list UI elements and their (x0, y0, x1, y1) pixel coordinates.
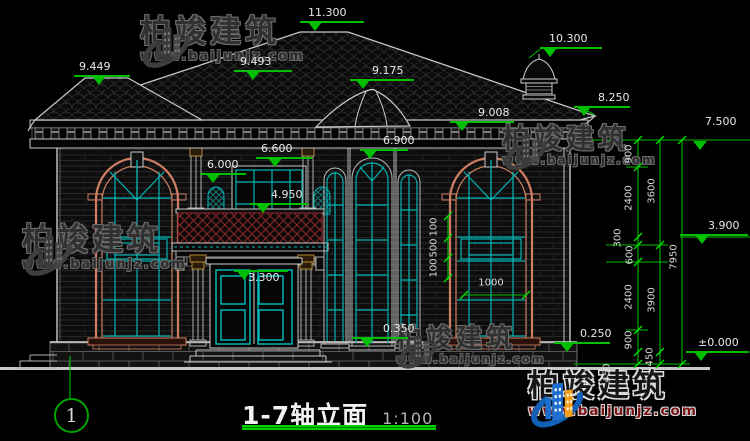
level-marker-line (680, 234, 748, 236)
elevation-sheet: 11.3009.4499.4939.17510.3009.0088.2507.5… (0, 0, 750, 441)
linear-dim-value: 7950 (669, 244, 680, 269)
watermark-brand-text: 柏竣建筑 (140, 16, 305, 49)
level-marker-triangle (695, 235, 709, 244)
level-marker-triangle (92, 76, 106, 85)
level-marker-value: 7.500 (705, 116, 737, 128)
level-marker-value: 3.300 (248, 272, 280, 284)
watermark-url-text: www.baijunjz.com (528, 403, 698, 419)
linear-dim-value: 500 (429, 238, 440, 257)
level-marker-value: 6.000 (207, 159, 239, 171)
level-marker-triangle (455, 122, 469, 131)
axis-marker-1: 1 (54, 398, 89, 433)
baijun-logo-icon (140, 16, 196, 72)
linear-dim-value: 3600 (647, 178, 658, 203)
level-marker-triangle (577, 107, 591, 116)
linear-dim-value: 900 (624, 330, 635, 349)
linear-dim-value: 300 (613, 228, 624, 247)
level-marker-triangle (237, 271, 251, 280)
linear-dim-value: 450 (645, 347, 656, 366)
baijun-logo-icon (528, 370, 590, 432)
watermark-brand-text: 柏竣建筑 (528, 370, 698, 403)
level-marker-value: 9.449 (79, 61, 111, 73)
level-marker-value: 4.950 (271, 189, 303, 201)
watermark-color: 柏竣建筑 www.baijunjz.com (528, 370, 698, 419)
level-marker-triangle (206, 174, 220, 183)
level-marker-triangle (694, 352, 708, 361)
level-marker-value: 9.008 (478, 107, 510, 119)
watermark-url-text: www.baijunjz.com (22, 257, 187, 273)
level-marker-triangle (268, 158, 282, 167)
watermark-brand-text: 柏竣建筑 (22, 224, 187, 257)
level-marker-triangle (363, 150, 377, 159)
axis-marker-label: 1 (65, 405, 77, 427)
level-marker-triangle (560, 343, 574, 352)
linear-dim-value: 600 (625, 245, 636, 264)
level-marker-value: 0.350 (383, 323, 415, 335)
level-marker-value: 9.493 (240, 56, 272, 68)
level-marker-value: 0.250 (580, 328, 612, 340)
watermark-gray: 柏竣建筑 www.baijunjz.com (22, 224, 187, 272)
linear-dim-value: 1000 (478, 278, 503, 289)
watermark-brand-text: 柏竣建筑 (396, 326, 545, 353)
watermark-gray: 柏竣建筑 www.baijunjz.com (140, 16, 305, 64)
level-marker-triangle (246, 71, 260, 80)
linear-dim-value: 2400 (624, 185, 635, 210)
watermark-url-text: www.baijunjz.com (396, 353, 545, 367)
watermark-gray: 柏竣建筑 www.baijunjz.com (396, 326, 545, 367)
level-marker-line (256, 157, 312, 159)
level-marker-value: 6.600 (261, 143, 293, 155)
baijun-logo-icon (502, 124, 552, 174)
linear-dim-value: 450 (602, 363, 613, 382)
level-marker-triangle (693, 141, 707, 150)
linear-dim-value: 2400 (624, 284, 635, 309)
level-marker-triangle (543, 48, 557, 57)
linear-dim-value: 100 (429, 217, 440, 236)
level-marker-value: 10.300 (549, 33, 588, 45)
level-marker-value: ±0.000 (698, 337, 739, 349)
linear-dim-value: 3900 (647, 287, 658, 312)
level-marker-triangle (360, 338, 374, 347)
level-marker-value: 9.175 (372, 65, 404, 77)
baijun-logo-icon (22, 224, 78, 280)
level-marker-value: 3.900 (708, 220, 740, 232)
linear-dim-value: 100 (429, 258, 440, 277)
linear-dim-value: 900 (624, 144, 635, 163)
level-marker-triangle (356, 80, 370, 89)
level-marker-value: 8.250 (598, 92, 630, 104)
level-marker-value: 6.900 (383, 135, 415, 147)
level-marker-line (234, 70, 292, 72)
level-marker-value: 11.300 (308, 7, 347, 19)
level-marker-triangle (256, 204, 270, 213)
watermark-url-text: www.baijunjz.com (140, 49, 305, 65)
level-marker-triangle (308, 22, 322, 31)
title-underline (242, 425, 436, 430)
